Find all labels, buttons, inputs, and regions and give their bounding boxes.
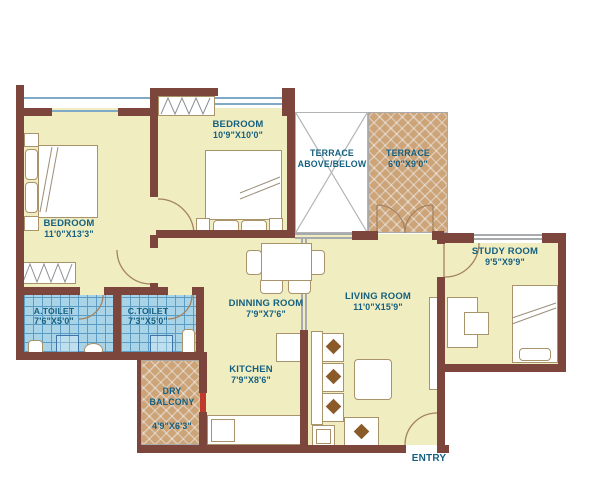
wall-segment bbox=[150, 88, 158, 197]
room-dims: 7'9"X7'6" bbox=[206, 309, 326, 320]
room-name-2: BALCONY bbox=[142, 397, 202, 408]
room-dims: 7'6"X5'0" bbox=[18, 316, 90, 327]
label-kitchen: KITCHEN 7'9"X8'6" bbox=[201, 364, 301, 386]
wall-segment bbox=[156, 230, 295, 238]
dining-table bbox=[261, 243, 312, 281]
window-bedroom-2-a bbox=[214, 97, 282, 99]
bed-bedroom-2 bbox=[205, 150, 282, 220]
room-name-2: ABOVE/BELOW bbox=[288, 159, 376, 170]
label-dry-balcony: DRY BALCONY 4'9"X6'3" bbox=[142, 386, 202, 432]
room-dims: 10'9"X10'0" bbox=[184, 130, 292, 141]
label-dinning-room: DINNING ROOM 7'9"X7'6" bbox=[206, 298, 326, 320]
wall-segment bbox=[16, 287, 80, 295]
wall-segment bbox=[118, 108, 152, 116]
wardrobe-bedroom-2 bbox=[158, 96, 215, 116]
pillow bbox=[25, 149, 38, 180]
room-dims: 11'0"X13'3" bbox=[16, 229, 122, 240]
room-name: A.TOILET bbox=[18, 306, 90, 316]
wall-segment bbox=[352, 231, 378, 240]
wall-segment bbox=[300, 330, 308, 445]
window-bedroom-2-b bbox=[214, 103, 282, 105]
dining-chair bbox=[246, 250, 262, 275]
room-dims: 7'9"X8'6" bbox=[201, 375, 301, 386]
label-entry: ENTRY bbox=[399, 453, 459, 465]
study-door-gap bbox=[437, 244, 445, 277]
label-c-toilet: C.TOILET 7'3"X5'0" bbox=[112, 306, 184, 327]
wall-segment bbox=[196, 295, 204, 352]
wall-segment bbox=[150, 88, 218, 96]
room-name: DINNING ROOM bbox=[206, 298, 326, 309]
wall-segment bbox=[137, 360, 141, 445]
window-study-b bbox=[474, 238, 542, 240]
bedside-table bbox=[24, 133, 39, 147]
room-dims: 6'0"X9'0" bbox=[370, 159, 446, 170]
label-a-toilet: A.TOILET 7'6"X5'0" bbox=[18, 306, 90, 327]
label-study-room: STUDY ROOM 9'5"X9'9" bbox=[455, 246, 555, 268]
chair-study bbox=[464, 312, 489, 335]
room-name: LIVING ROOM bbox=[318, 291, 438, 302]
window-dining-a bbox=[295, 233, 352, 235]
bed-bedroom-1 bbox=[38, 145, 98, 218]
wardrobe-bedroom-1 bbox=[20, 262, 76, 284]
room-dims: 9'5"X9'9" bbox=[455, 257, 555, 268]
entry-label: ENTRY bbox=[399, 453, 459, 465]
wall-segment bbox=[558, 233, 566, 372]
label-bedroom-1: BEDROOM 11'0"X13'3" bbox=[16, 218, 122, 240]
room-dims: 7'3"X5'0" bbox=[112, 316, 184, 327]
room-dims: 4'9"X6'3" bbox=[142, 421, 202, 432]
room-name: C.TOILET bbox=[112, 306, 184, 316]
room-name: STUDY ROOM bbox=[455, 246, 555, 257]
room-dims: 11'0"X15'9" bbox=[318, 302, 438, 313]
wall-segment bbox=[16, 352, 207, 360]
room-name: BEDROOM bbox=[16, 218, 122, 229]
room-name: KITCHEN bbox=[201, 364, 301, 375]
room-terrace-above-below bbox=[295, 112, 368, 233]
room-name: TERRACE bbox=[370, 148, 446, 159]
wall-segment bbox=[16, 108, 52, 116]
wall-segment bbox=[104, 287, 168, 295]
floor-plan: BEDROOM 11'0"X13'3" BEDROOM 10'9"X10'0" … bbox=[0, 0, 600, 500]
window-dining-b bbox=[295, 237, 352, 239]
pillow bbox=[519, 348, 551, 361]
wall-segment bbox=[137, 445, 406, 453]
room-terrace bbox=[368, 112, 448, 233]
pillow bbox=[25, 182, 38, 213]
label-terrace: TERRACE 6'0"X9'0" bbox=[370, 148, 446, 169]
kitchen-sink bbox=[211, 419, 235, 442]
window-bedroom-1-inner bbox=[52, 110, 120, 112]
window-study-a bbox=[474, 234, 542, 236]
label-bedroom-2: BEDROOM 10'9"X10'0" bbox=[184, 119, 292, 141]
room-name: DRY bbox=[142, 386, 202, 397]
coffee-table bbox=[354, 359, 392, 400]
room-name: BEDROOM bbox=[184, 119, 292, 130]
room-name: TERRACE bbox=[288, 148, 376, 159]
side-table-inner bbox=[316, 429, 331, 444]
wall-segment bbox=[437, 233, 474, 243]
label-living-room: LIVING ROOM 11'0"X15'9" bbox=[318, 291, 438, 313]
label-terrace-above-below: TERRACE ABOVE/BELOW bbox=[288, 148, 376, 169]
wall-segment bbox=[192, 287, 204, 295]
window-bedroom-1-outer bbox=[24, 97, 152, 99]
wall-segment bbox=[437, 364, 566, 372]
